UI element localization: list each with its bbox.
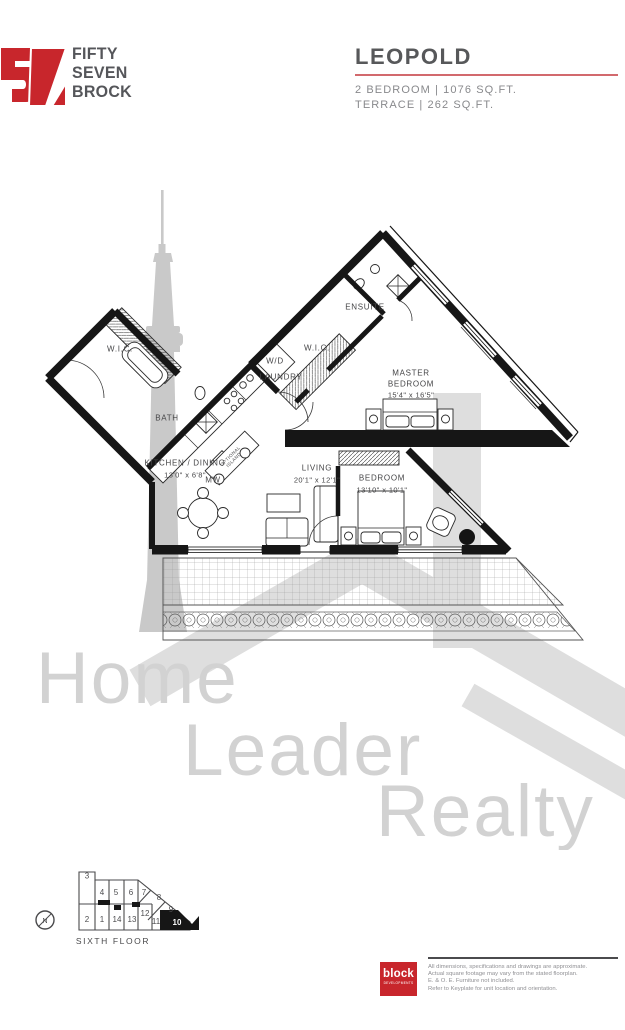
footer-divider	[428, 957, 618, 959]
lamp	[370, 415, 378, 423]
lamp	[410, 532, 418, 540]
keyplate-unit-5: 5	[114, 888, 119, 897]
dining-chair	[218, 508, 229, 519]
stove-burner	[231, 391, 237, 397]
keyplate-unit-12: 12	[141, 909, 150, 918]
keyplate-unit-6: 6	[129, 888, 134, 897]
room-label-entry-wic: W.I.C.	[107, 345, 133, 354]
bedroom-closet	[339, 451, 399, 465]
room-label-kitchen: KITCHEN / DINING	[145, 459, 226, 468]
room-label-bedroom: BEDROOM	[359, 474, 405, 483]
dining-chair	[198, 488, 209, 499]
pillow	[386, 416, 409, 427]
floorplan-area: Home Leader Realty	[0, 150, 625, 850]
title-block: LEOPOLD 2 BEDROOM | 1076 SQ.FT. TERRACE …	[355, 44, 618, 111]
sink-basin	[247, 375, 254, 382]
room-label-bath: BATH	[155, 414, 179, 423]
floorplan-sheet: { "header": { "brand": { "number": "57",…	[0, 0, 625, 1030]
brand-line2: SEVEN	[72, 63, 132, 82]
structural-column	[459, 529, 475, 545]
keyplate-unit-11: 11	[152, 917, 161, 926]
disclaimer: All dimensions, specifications and drawi…	[428, 964, 623, 993]
stove-burner	[238, 398, 244, 404]
label-microwave: MW	[205, 476, 221, 485]
room-label-master-line2: BEDROOM	[388, 380, 434, 389]
compass-icon: N	[36, 911, 54, 929]
developer-subtitle: DEVELOPMENTS	[380, 981, 417, 985]
disclaimer-line4: Refer to Keyplate for unit location and …	[428, 986, 623, 993]
keyplate-unit-13: 13	[128, 915, 137, 924]
stove-burner	[231, 405, 237, 411]
compass-north-label: N	[42, 918, 47, 925]
developer-name: block	[380, 968, 417, 980]
pillow	[411, 416, 434, 427]
header: FIFTY SEVEN BROCK LEOPOLD 2 BEDROOM | 10…	[0, 0, 625, 150]
room-label-laundry: LAUNDRY	[260, 373, 303, 382]
lamp	[442, 415, 450, 423]
keyplate: N 3 4 5 6 7 8 9 2 1 14 13 12 11 10 SIXTH…	[20, 862, 220, 952]
page-title: LEOPOLD	[355, 44, 618, 70]
pillow	[361, 532, 380, 543]
terrace	[163, 558, 583, 640]
toilet	[195, 387, 205, 400]
room-label-living: LIVING	[302, 464, 332, 473]
keyplate-floor-label: SIXTH FLOOR	[76, 936, 150, 946]
keyplate-unit-3: 3	[85, 872, 90, 881]
coffee-table	[267, 494, 300, 512]
dining-table	[188, 498, 218, 528]
room-dims-master: 15'4" x 16'5"	[388, 391, 434, 400]
room-label-master-line1: MASTER	[392, 369, 430, 378]
room-dims-bedroom: 13'10" x 10'1"	[357, 486, 408, 495]
title-underline	[355, 74, 618, 76]
pillow	[382, 532, 401, 543]
keyplate-unit-8: 8	[157, 893, 162, 902]
keyplate-unit-7: 7	[142, 888, 147, 897]
room-label-master-wic: W.I.C.	[304, 344, 330, 353]
room-label-ensuite: ENSUITE	[345, 303, 385, 312]
room-dims-living: 20'1" x 12'1"	[294, 476, 340, 485]
keyplate-unit-2: 2	[85, 915, 90, 924]
keyplate-unit-1: 1	[100, 915, 105, 924]
disclaimer-line2: Actual square footage may vary from the …	[428, 971, 623, 978]
spec-terrace: TERRACE | 262 SQ.FT.	[355, 99, 618, 111]
watermark-word-realty: Realty	[376, 771, 595, 850]
keyplate-unit-9: 9	[169, 905, 174, 914]
disclaimer-line3: E. & O. E. Furniture not included.	[428, 978, 623, 985]
room-label-wd: W/D	[266, 357, 284, 366]
floorplan-drawing: Home Leader Realty	[0, 150, 625, 850]
keyplate-unit-14: 14	[113, 915, 122, 924]
keyplate-unit-4: 4	[100, 888, 105, 897]
spec-bedrooms: 2 BEDROOM | 1076 SQ.FT.	[355, 84, 618, 96]
lounge-chair	[314, 486, 338, 542]
lamp	[345, 532, 353, 540]
disclaimer-line1: All dimensions, specifications and drawi…	[428, 964, 623, 971]
dining-chair	[178, 508, 189, 519]
brand-name: FIFTY SEVEN BROCK	[72, 44, 132, 101]
brand-line1: FIFTY	[72, 44, 132, 63]
keyplate-cores	[98, 900, 140, 910]
fifty-seven-logo-icon	[0, 42, 66, 112]
developer-logo: block DEVELOPMENTS	[380, 962, 417, 996]
ensuite-sink	[371, 265, 380, 274]
sink-basin	[240, 382, 247, 389]
room-dims-kitchen: 13'0" x 6'8"	[164, 471, 206, 480]
brand-line3: BROCK	[72, 82, 132, 101]
watermark-word-home: Home	[36, 638, 239, 719]
brand-logo: FIFTY SEVEN BROCK	[0, 42, 136, 112]
dining-chair	[198, 528, 209, 539]
keyplate-unit-10: 10	[173, 918, 182, 927]
stove-burner	[224, 398, 230, 404]
